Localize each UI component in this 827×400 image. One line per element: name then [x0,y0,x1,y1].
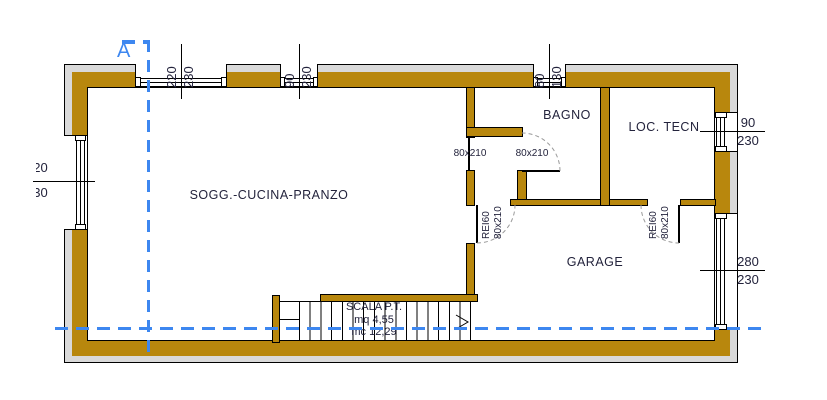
door-label-2: 80x210 [502,148,562,159]
window-garage-frame [716,218,725,325]
wall-garage-top-right [680,199,716,206]
fire-door-1-size: 80x210 [493,193,505,239]
door-leaf-bath [522,170,560,172]
dim-left-w: 220 [36,160,66,176]
wall-hall-mid [466,170,475,206]
stair-landing-divider [279,319,299,320]
window-left-cap-top [75,135,86,141]
dim-top-3-w: 80 [533,44,547,88]
fire-door-2-rating: REI60 [648,193,660,239]
stair-label: SCALA P.T. [314,301,434,313]
dim-line-garage [700,270,765,271]
window-tech-frame [716,116,725,148]
door-leaf-fire2 [678,205,680,243]
window-tech-cap-bottom [715,146,727,152]
section-line-horizontal [55,327,762,331]
room-label-living: SOGG.-CUCINA-PRANZO [169,188,369,202]
window-top-1-cap-right [221,77,227,87]
dim-top-3-h: 130 [550,44,564,88]
wall-bath-tech-divider [600,87,610,206]
door-label-1: 80x210 [440,148,500,159]
fire-door-2-size: 80x210 [660,193,672,239]
floor-plan: SCALA P.T. mq 4,55 mc 12,29 SOGG.-CUCINA… [0,0,827,400]
window-garage-cap-top [715,213,727,219]
window-left-cap-bottom [75,224,86,230]
dim-left-clip: 220 230 [36,160,66,202]
room-label-garage: GARAGE [545,255,645,269]
window-top-1-cap-left [135,77,141,87]
dim-top-1-h: 230 [182,42,196,88]
section-line-vertical [147,40,151,355]
fire-door-1-rating: REI60 [481,193,493,239]
room-label-bathroom: BAGNO [517,108,617,122]
window-left-frame [76,139,85,226]
dim-tech-h: 230 [728,133,768,148]
dim-garage-h: 230 [726,272,770,287]
door-leaf-fire1 [476,205,478,243]
room-label-tech: LOC. TECN [614,120,714,134]
dim-left-h: 230 [36,185,66,201]
section-marker-bracket [122,40,149,44]
dim-top-2-w: 90 [283,44,297,88]
fire-door-2-label: REI60 80x210 [648,193,672,239]
fire-door-1-label: REI60 80x210 [481,193,505,239]
window-tech-cap-top [715,112,727,118]
dim-tech-w: 90 [731,115,765,130]
stair-area-label: mq 4,55 [314,314,434,326]
wall-garage-top-left [510,199,648,206]
wall-bath-stub [466,127,523,137]
dim-top-1-w: 220 [165,42,179,88]
dim-garage-w: 280 [726,254,770,269]
dim-line-tech [700,131,765,132]
dim-top-2-h: 230 [300,44,314,88]
